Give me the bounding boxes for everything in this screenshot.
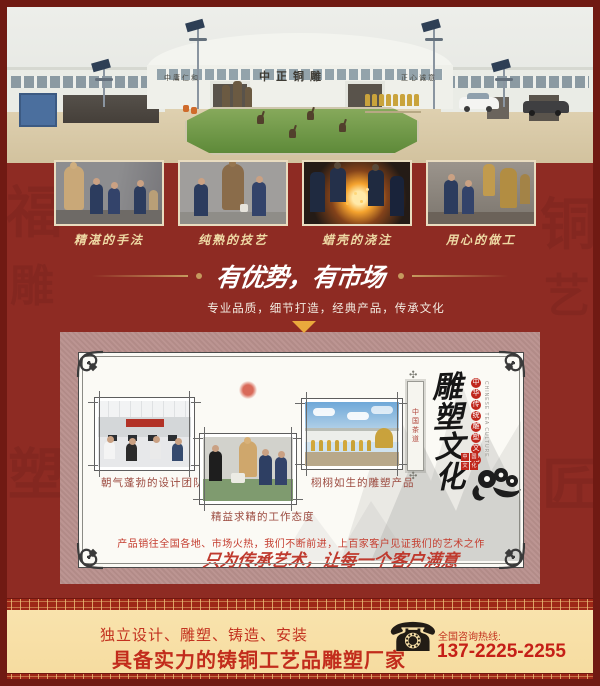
card-photo-caption: 栩栩如生的雕塑产品 [311,475,415,490]
telephone-icon: ☎ [388,618,438,658]
dark-car [523,101,569,113]
process-caption: 蜡壳的浇注 [302,231,412,248]
deer-statue [257,115,264,124]
deer-statue [307,111,314,120]
vertical-title: 雕塑文化 [425,370,466,511]
hotline-phone-number[interactable]: 137-2225-2255 [437,641,566,663]
process-caption: 精湛的手法 [54,231,164,248]
vertical-english-label: CHINESE TEA CULTURE [483,381,489,458]
dark-tarp-wall [63,95,159,123]
page: 福雕铜艺塑匠 中庸仁和 中正铜雕 正心诚意 [0,0,600,686]
card-photo-design-team[interactable] [94,397,195,471]
card-photo-caption: 朝气蓬勃的设计团队 [101,475,205,490]
process-caption: 用心的做工 [426,231,536,248]
factory-panorama-photo: 中庸仁和 中正铜雕 正心诚意 [7,7,593,163]
divider-line-right [412,275,508,277]
process-photo-finishing[interactable] [178,160,288,226]
process-caption: 纯熟的技艺 [178,231,288,248]
corner-flourish [75,349,105,379]
bookmark-ornament: 中国茶道 [407,381,424,471]
culture-card: 朝气蓬勃的设计团队 精益求精的工作态度 [78,352,524,568]
divider-title: 有优势，有市场 [214,258,386,294]
lamp-post [503,65,505,107]
building-sign-left: 中庸仁和 [164,73,200,83]
center-lawn [185,107,419,155]
deer-statue [289,129,296,138]
orange-chair [191,107,197,114]
deer-statue [339,123,346,132]
divider-dot [398,273,404,279]
culture-band: 朝气蓬勃的设计团队 精益求精的工作态度 [60,332,540,584]
window-strip [11,76,161,88]
red-sun-motif [239,381,257,399]
card-slogan: 只为传承艺术，让每一个客户满意 [137,546,525,571]
corner-flourish [497,541,527,571]
building-sign-center: 中正铜雕 [259,68,327,84]
process-photo-sculpting[interactable] [54,160,164,226]
down-triangle-pointer [292,321,316,333]
divider-line-left [92,275,188,277]
ink-cloud-motif [467,465,523,503]
footer-company-line: 具备实力的铸铜工艺品雕塑厂家 [112,644,406,673]
section-divider: 有优势，有市场 专业品质，细节打造，经典产品，传承文化 [0,258,600,316]
white-car [459,97,499,109]
footer-services-line: 独立设计、雕塑、铸造、安装 [100,624,308,645]
card-photo-caption: 精益求精的工作态度 [211,509,315,524]
process-photo-casting[interactable] [302,160,412,226]
card-photo-sculpture-products[interactable] [301,398,403,470]
window-strip [445,76,589,88]
corner-flourish [75,541,105,571]
card-photo-work-attitude[interactable] [199,433,297,505]
building-sign-right: 正心诚意 [401,73,437,83]
footer: 独立设计、雕塑、铸造、安装 具备实力的铸铜工艺品雕塑厂家 ☎ 全国咨询热线: 1… [0,610,600,673]
divider-subtitle: 专业品质，细节打造，经典产品，传承文化 [26,300,600,316]
golden-statue-row [365,93,421,113]
corner-flourish [497,349,527,379]
solar-lamp-post [433,25,435,109]
process-photo-polishing[interactable] [426,160,536,226]
blue-garage-door [19,93,57,127]
solar-lamp-post [197,25,199,109]
lamp-post [103,65,105,107]
orange-chair [183,105,189,112]
ornament-border-bottom [0,673,600,686]
divider-dot [196,273,202,279]
